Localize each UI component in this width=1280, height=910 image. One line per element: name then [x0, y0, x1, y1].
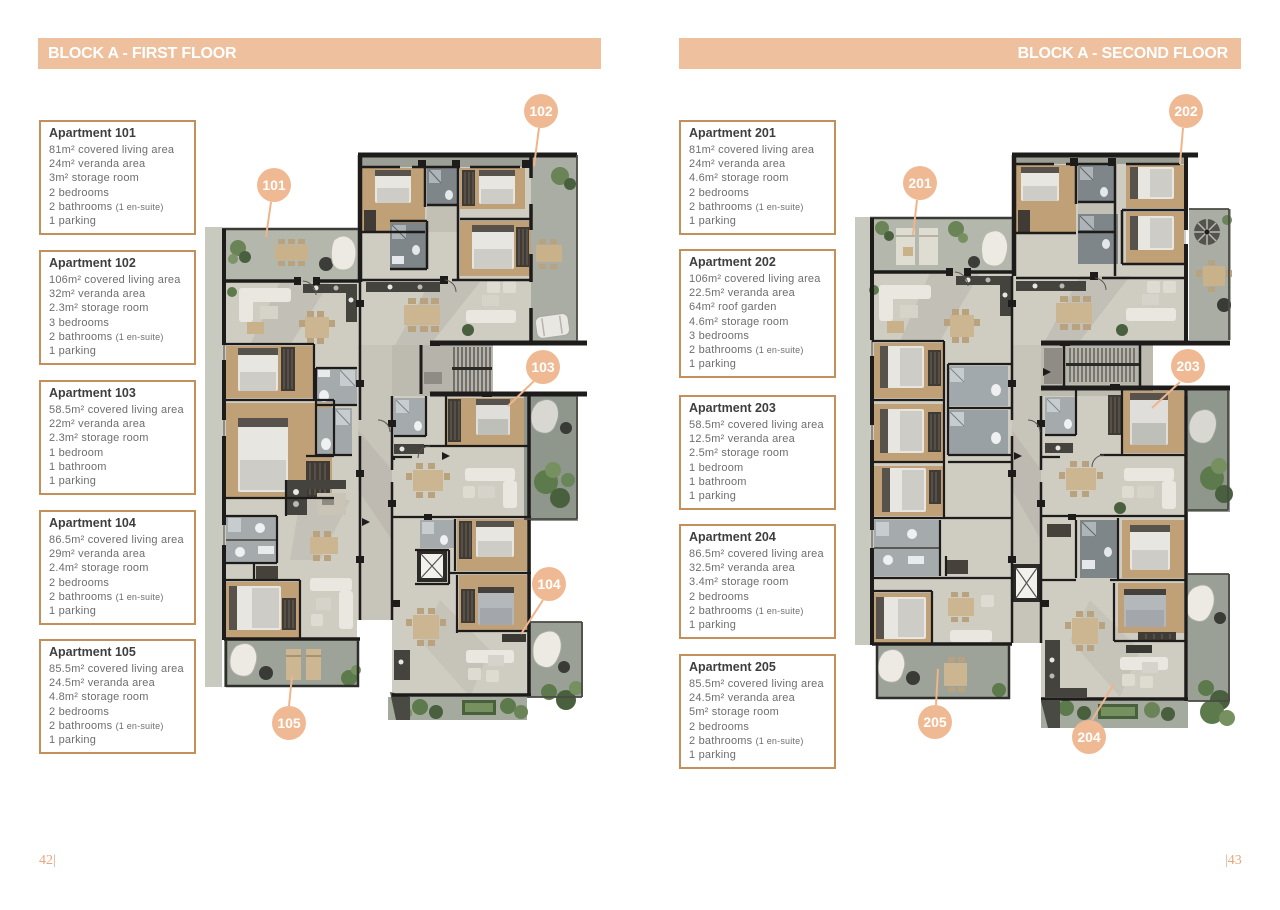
- svg-text:105: 105: [277, 715, 301, 731]
- svg-text:202: 202: [1174, 103, 1198, 119]
- svg-text:204: 204: [1077, 729, 1101, 745]
- svg-text:103: 103: [531, 359, 555, 375]
- svg-text:102: 102: [529, 103, 553, 119]
- svg-text:101: 101: [262, 177, 286, 193]
- svg-text:201: 201: [908, 175, 932, 191]
- svg-text:205: 205: [923, 714, 947, 730]
- svg-text:203: 203: [1176, 358, 1200, 374]
- svg-text:104: 104: [537, 576, 561, 592]
